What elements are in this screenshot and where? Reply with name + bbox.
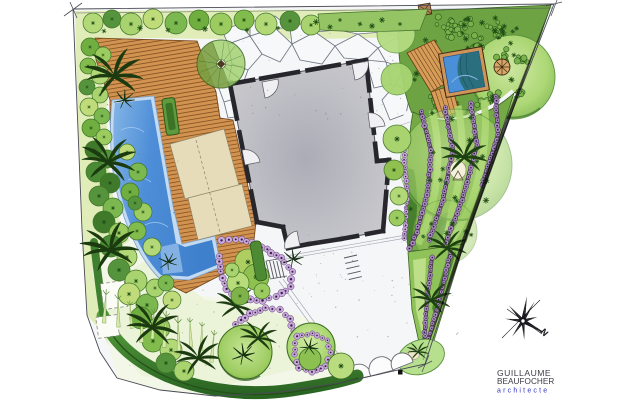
svg-text:BEAUFOCHER: BEAUFOCHER [497, 377, 554, 386]
svg-text:architecte: architecte [497, 388, 549, 395]
